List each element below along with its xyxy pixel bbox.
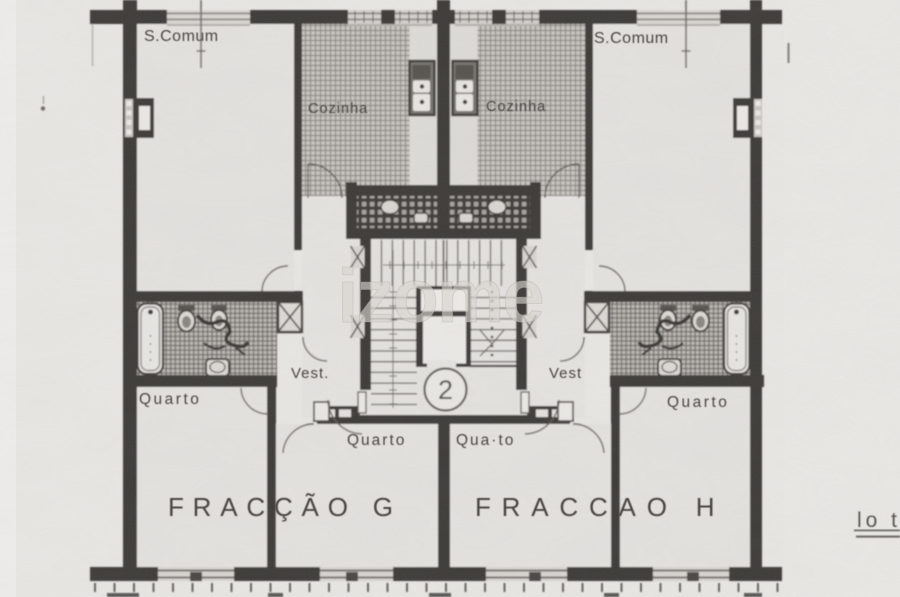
svg-text:izome: izome	[337, 254, 542, 339]
